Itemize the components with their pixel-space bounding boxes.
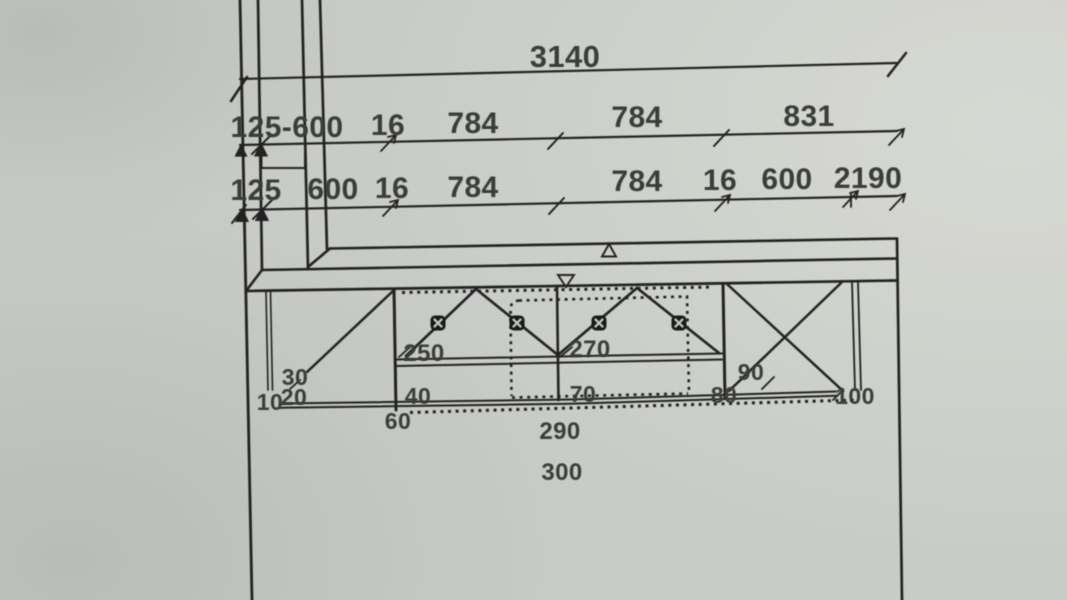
svg-text:16: 16 (371, 109, 405, 142)
svg-text:100: 100 (835, 383, 875, 409)
svg-text:16: 16 (703, 164, 737, 197)
svg-text:16: 16 (375, 172, 409, 205)
svg-text:784: 784 (447, 107, 498, 140)
svg-text:300: 300 (541, 459, 582, 486)
svg-text:125-600: 125-600 (231, 111, 344, 144)
svg-text:250: 250 (403, 340, 444, 367)
svg-text:600: 600 (761, 163, 812, 196)
svg-text:70: 70 (570, 381, 596, 407)
svg-text:60: 60 (385, 408, 411, 434)
svg-text:784: 784 (447, 171, 498, 204)
svg-text:2190: 2190 (834, 162, 902, 195)
svg-text:290: 290 (539, 418, 580, 445)
svg-text:600: 600 (307, 173, 358, 206)
svg-text:831: 831 (783, 100, 834, 133)
svg-text:20: 20 (281, 384, 307, 410)
svg-text:10: 10 (257, 389, 283, 415)
svg-text:3140: 3140 (530, 39, 601, 74)
svg-text:90: 90 (738, 359, 764, 385)
svg-text:40: 40 (405, 383, 431, 409)
svg-text:784: 784 (611, 101, 662, 134)
svg-text:80: 80 (711, 382, 737, 408)
svg-text:784: 784 (611, 165, 662, 198)
svg-text:125: 125 (230, 174, 281, 207)
svg-text:270: 270 (569, 336, 610, 363)
